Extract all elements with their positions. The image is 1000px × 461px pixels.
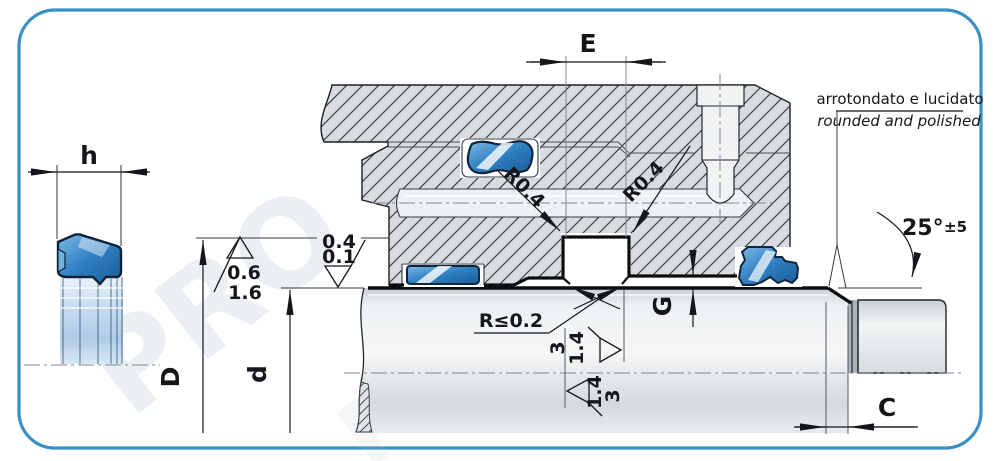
- housing-section: [321, 74, 802, 287]
- seal-lip-notch: [58, 249, 65, 272]
- installation-drawing: PRO PRO h: [0, 0, 1000, 461]
- G-label: G: [648, 296, 677, 317]
- h-label: h: [80, 141, 98, 170]
- C-label: C: [878, 393, 896, 422]
- surface-note-italian: arrotondato e lucidato: [816, 90, 983, 108]
- roughness-groove-left-outer: 3: [602, 389, 624, 402]
- seal-inner-surface: [60, 277, 123, 364]
- angle-tolerance: ±5: [944, 218, 967, 236]
- roughness-bore-lower: 0.1: [322, 246, 356, 268]
- roughness-face-lower: 1.6: [228, 282, 262, 304]
- roughness-groove-right-inner: 1.4: [566, 331, 588, 365]
- angle-value: 25°: [902, 216, 944, 241]
- rod-end-section: [858, 300, 946, 373]
- d-label: d: [243, 365, 272, 383]
- R02-label: R≤0.2: [479, 310, 543, 332]
- rod-chamfer-band: [848, 300, 858, 373]
- D-label: D: [156, 367, 185, 388]
- roughness-face-upper: 0.6: [227, 262, 261, 284]
- surface-note-english: rounded and polished: [817, 112, 981, 130]
- catalog-figure: PRO PRO h: [0, 0, 1000, 461]
- seal-groove: [561, 233, 631, 285]
- E-label: E: [579, 29, 596, 58]
